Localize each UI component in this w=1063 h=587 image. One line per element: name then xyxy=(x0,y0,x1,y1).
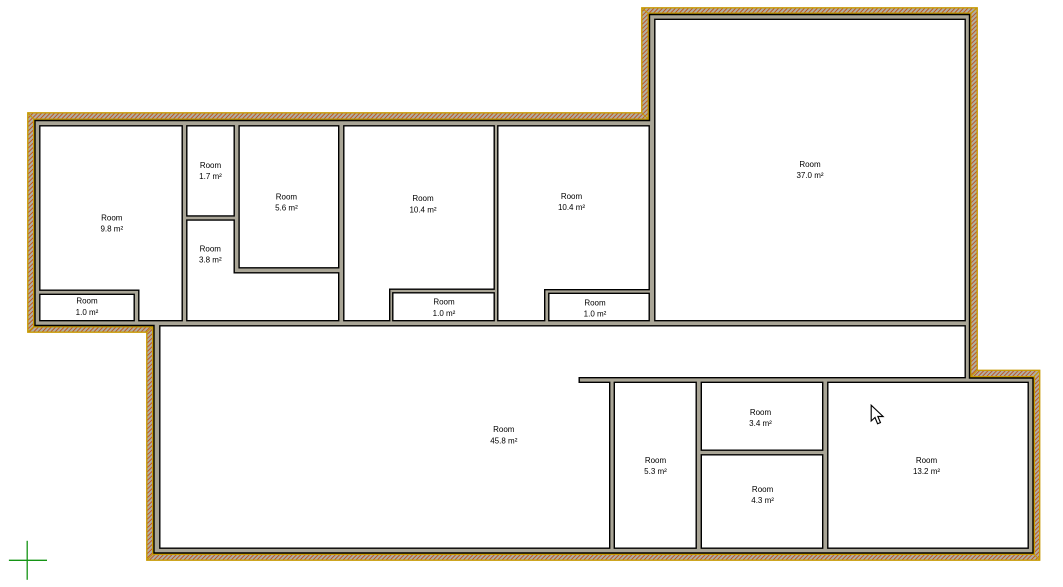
svg-text:5.3 m²: 5.3 m² xyxy=(644,467,667,476)
svg-text:Room: Room xyxy=(276,192,298,201)
svg-text:Room: Room xyxy=(561,192,583,201)
svg-text:Room: Room xyxy=(200,161,222,170)
svg-text:1.0 m²: 1.0 m² xyxy=(76,308,99,317)
svg-text:Room: Room xyxy=(76,297,98,306)
svg-text:Room: Room xyxy=(750,408,772,417)
svg-text:Room: Room xyxy=(200,244,222,253)
svg-text:Room: Room xyxy=(412,194,434,203)
svg-text:Room: Room xyxy=(799,160,821,169)
svg-text:Room: Room xyxy=(752,485,774,494)
svg-text:1.0 m²: 1.0 m² xyxy=(433,309,456,318)
svg-text:13.2 m²: 13.2 m² xyxy=(913,467,940,476)
svg-text:Room: Room xyxy=(493,425,515,434)
svg-text:Room: Room xyxy=(584,298,606,307)
svg-text:3.8 m²: 3.8 m² xyxy=(199,256,222,265)
svg-text:3.4 m²: 3.4 m² xyxy=(749,419,772,428)
svg-text:37.0 m²: 37.0 m² xyxy=(796,171,823,180)
svg-text:Room: Room xyxy=(916,456,938,465)
svg-text:Room: Room xyxy=(101,213,123,222)
svg-text:10.4 m²: 10.4 m² xyxy=(558,203,585,212)
svg-text:10.4 m²: 10.4 m² xyxy=(409,206,436,215)
svg-text:1.0 m²: 1.0 m² xyxy=(584,310,607,319)
svg-text:5.6 m²: 5.6 m² xyxy=(275,204,298,213)
svg-text:9.8 m²: 9.8 m² xyxy=(100,225,123,234)
svg-text:4.3 m²: 4.3 m² xyxy=(751,496,774,505)
svg-text:1.7 m²: 1.7 m² xyxy=(199,172,222,181)
svg-text:Room: Room xyxy=(645,456,667,465)
svg-text:45.8 m²: 45.8 m² xyxy=(490,436,517,445)
svg-text:Room: Room xyxy=(433,298,455,307)
